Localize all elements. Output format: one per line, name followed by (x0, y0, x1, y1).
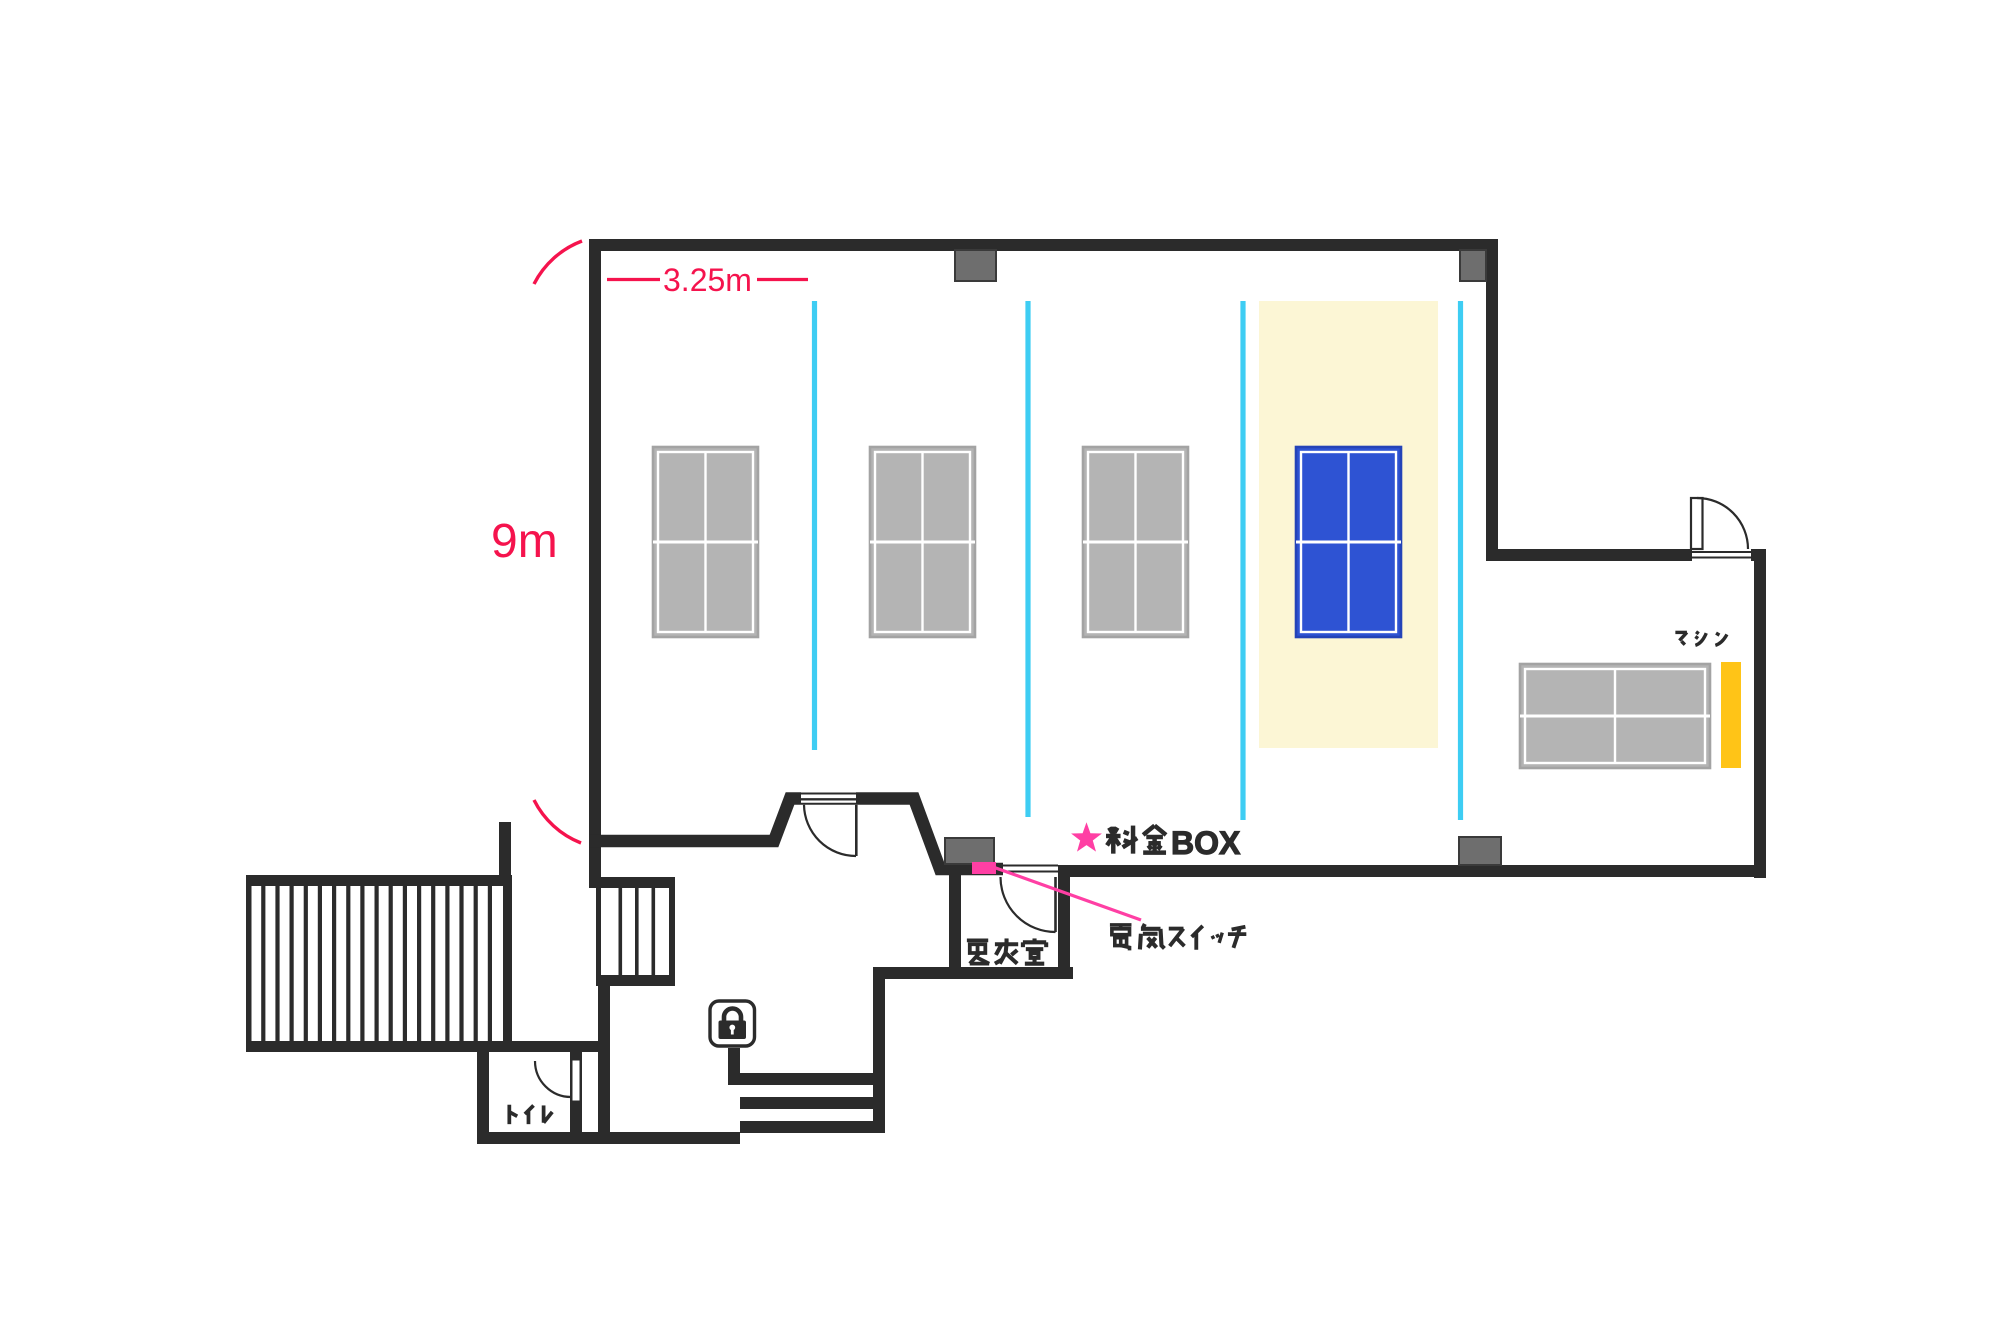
svg-text:BOX: BOX (1171, 825, 1241, 861)
svg-text:9m: 9m (491, 515, 558, 568)
svg-text:3.25m: 3.25m (663, 262, 752, 298)
